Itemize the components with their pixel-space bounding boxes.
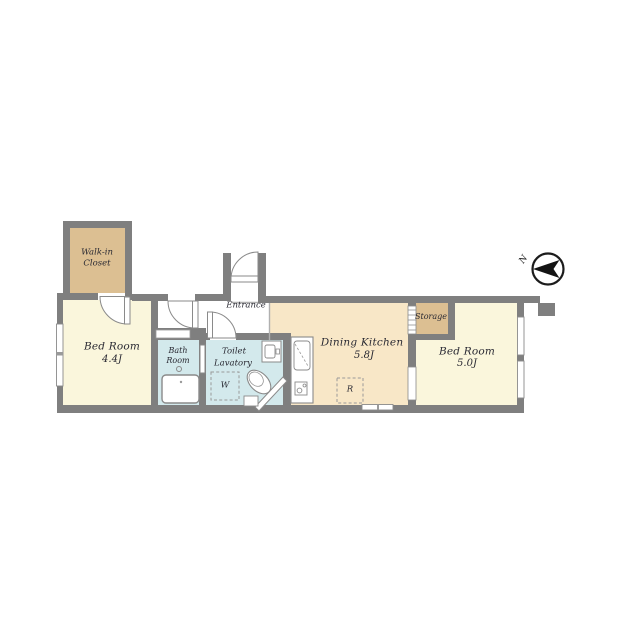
- bedroom2-label: Bed Room: [439, 345, 495, 358]
- refrigerator-label: R: [347, 385, 353, 396]
- wall-segment: [517, 355, 524, 361]
- wall-segment: [538, 303, 555, 316]
- wall-segment: [223, 253, 231, 301]
- window-bedroom2-east-lower: [518, 361, 525, 398]
- storage-label: Storage: [415, 312, 447, 322]
- lavatory-label: Lavatory: [214, 359, 252, 370]
- wall-segment: [236, 333, 291, 340]
- wall-segment: [57, 293, 98, 300]
- wall-segment: [151, 301, 158, 405]
- wall-segment: [408, 334, 455, 340]
- hall-storage-inset: [156, 330, 190, 338]
- doorway-bedroom2: [408, 367, 416, 400]
- door-arc-entrance: [231, 252, 258, 279]
- wall-segment: [132, 294, 168, 301]
- door-arc-bedroom1: [168, 301, 195, 328]
- dining-kitchen-label: Dining Kitchen: [321, 336, 404, 349]
- bathtub-faucet-dot: [180, 381, 182, 383]
- wall-segment: [57, 405, 524, 413]
- wall-segment: [258, 253, 266, 303]
- window-bedroom2-east-upper: [518, 317, 525, 355]
- wall-segment: [63, 221, 132, 228]
- door-leaf-closet: [125, 297, 131, 324]
- door-leaf-bedroom1: [193, 301, 199, 328]
- washer-label: W: [221, 381, 230, 392]
- door-leaf-bathroom: [200, 345, 205, 373]
- compass-icon: N: [517, 253, 564, 285]
- wall-segment: [266, 296, 540, 303]
- door-leaf-entrance: [231, 276, 258, 282]
- bedroom1-area: 4.4J: [102, 354, 122, 367]
- toilet-cabinet: [244, 396, 258, 406]
- bathtub: [162, 375, 199, 403]
- dining-kitchen-area: 5.8J: [354, 350, 374, 363]
- entrance-label: Entrance: [226, 301, 266, 312]
- window-mullion: [57, 352, 64, 356]
- wall-segment: [283, 333, 291, 405]
- walk-in-closet-label: Walk-in Closet: [72, 247, 122, 268]
- bathroom-label: Bath Room: [159, 346, 197, 366]
- toilet-label: Toilet: [222, 347, 246, 358]
- wall-segment: [63, 221, 70, 300]
- floor-plan-page: N Walk-in Closet Bed Room 4.4J Bath Room…: [0, 0, 640, 640]
- compass-n-label: N: [517, 253, 531, 267]
- door-leaf-lavatory: [208, 312, 213, 338]
- wall-segment: [125, 221, 132, 300]
- wall-segment: [517, 398, 524, 413]
- bedroom1-label: Bed Room: [84, 340, 140, 353]
- floor-plan: N: [0, 0, 640, 640]
- wall-segment: [517, 303, 524, 317]
- window-mullion: [377, 405, 379, 411]
- bedroom2-area: 5.0J: [457, 358, 477, 371]
- door-arc-lavatory: [210, 312, 236, 338]
- wall-segment: [195, 294, 224, 301]
